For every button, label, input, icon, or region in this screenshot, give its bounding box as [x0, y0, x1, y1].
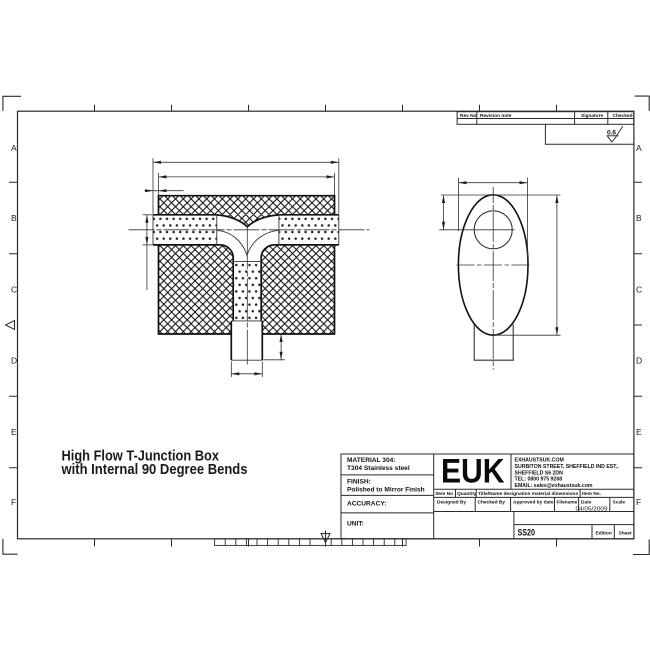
svg-text:B: B	[636, 213, 642, 223]
svg-text:Quantity: Quantity	[457, 491, 477, 497]
svg-text:Checked: Checked	[613, 113, 633, 119]
svg-text:Signature: Signature	[581, 113, 603, 119]
svg-text:Approved by date: Approved by date	[513, 500, 554, 506]
svg-text:EUK: EUK	[441, 453, 505, 491]
svg-text:SURBITON STREET, SHEFFIELD IND: SURBITON STREET, SHEFFIELD IND EST.,	[515, 464, 620, 470]
svg-text:C: C	[636, 285, 642, 295]
svg-text:Checked By: Checked By	[478, 500, 506, 506]
svg-text:0.6: 0.6	[607, 130, 616, 137]
svg-text:Title/Name designation materia: Title/Name designation material dimensio…	[478, 491, 578, 497]
svg-text:Item No: Item No	[436, 491, 454, 497]
svg-text:F: F	[11, 497, 16, 507]
svg-text:Rev No: Rev No	[460, 113, 477, 119]
svg-text:D: D	[636, 356, 642, 366]
svg-text:04/05/2009: 04/05/2009	[576, 507, 608, 513]
svg-text:B: B	[11, 213, 17, 223]
svg-text:MATERIAL 304:: MATERIAL 304:	[347, 457, 395, 464]
svg-text:EMAIL: sales@exhaustsuk.com: EMAIL: sales@exhaustsuk.com	[515, 483, 593, 489]
svg-text:SHEFFIELD S6 2DN: SHEFFIELD S6 2DN	[515, 470, 564, 476]
svg-text:FINISH:: FINISH:	[347, 479, 371, 486]
svg-text:Filename: Filename	[557, 500, 578, 506]
svg-text:D: D	[11, 356, 17, 366]
svg-text:C: C	[11, 285, 17, 295]
svg-text:F: F	[636, 497, 641, 507]
svg-text:A: A	[636, 143, 642, 153]
svg-text:ACCURACY:: ACCURACY:	[347, 501, 386, 508]
svg-text:T304 Stainless steel: T304 Stainless steel	[347, 465, 410, 472]
svg-text:Polished to Mirror Finish: Polished to Mirror Finish	[347, 487, 425, 494]
svg-text:UNIT:: UNIT:	[347, 521, 364, 528]
svg-text:Item No.: Item No.	[582, 491, 601, 497]
svg-text:E: E	[11, 427, 17, 437]
svg-text:TEL: 0800 975 9268: TEL: 0800 975 9268	[515, 477, 563, 483]
svg-text:Edition: Edition	[596, 531, 612, 537]
svg-text:Scale: Scale	[613, 500, 626, 506]
svg-text:SS20: SS20	[518, 527, 536, 538]
svg-text:Revision note: Revision note	[480, 113, 512, 119]
svg-text:EXHAUSTSUK.COM: EXHAUSTSUK.COM	[515, 458, 564, 464]
svg-text:Designed By: Designed By	[437, 500, 466, 506]
svg-text:A: A	[11, 143, 17, 153]
svg-text:E: E	[636, 427, 642, 437]
svg-text:Sheet: Sheet	[619, 531, 632, 537]
svg-text:Date: Date	[581, 500, 592, 506]
svg-text:with Internal 90 Degree Bends: with Internal 90 Degree Bends	[61, 462, 248, 478]
